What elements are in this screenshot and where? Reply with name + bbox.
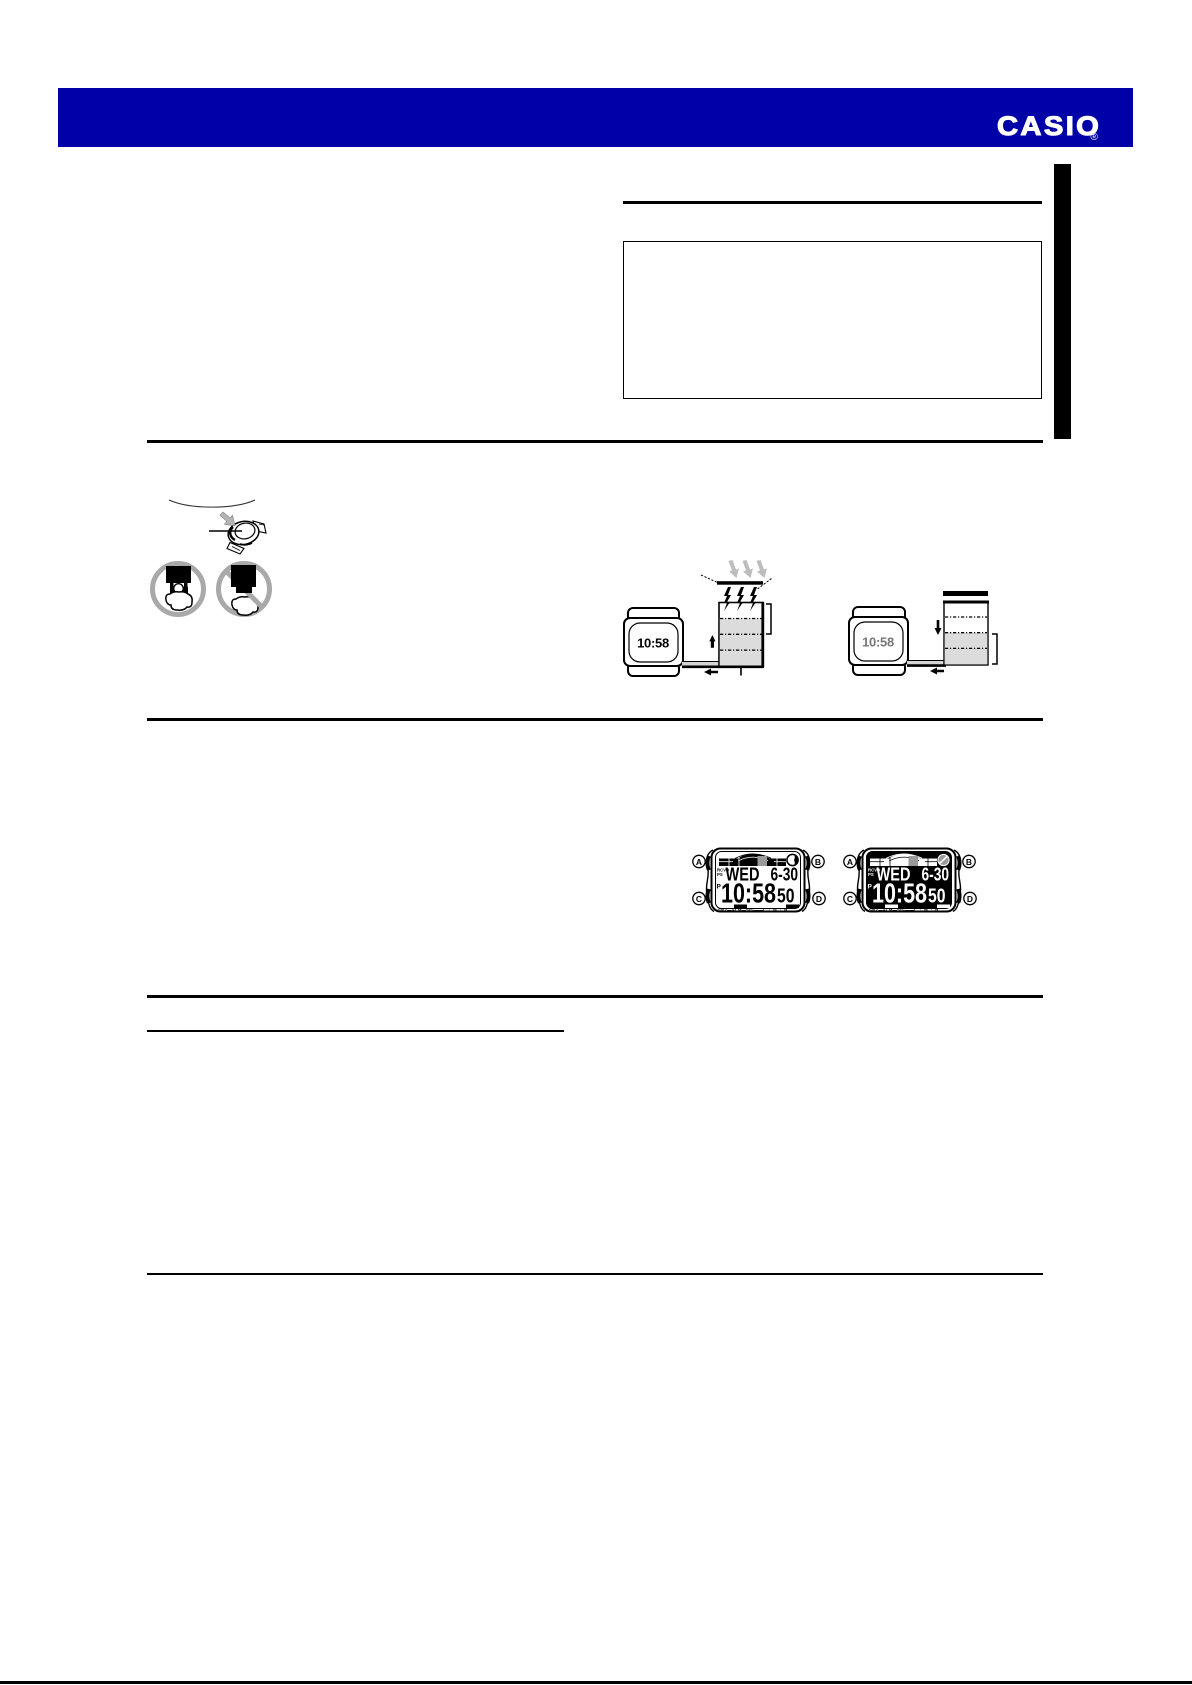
- svg-text:B: B: [966, 857, 972, 867]
- svg-text:C: C: [847, 894, 853, 904]
- svg-text:SNZ—ALM—SIG——L · M · H: SNZ—ALM—SIG——L · M · H: [718, 908, 787, 913]
- svg-text:50: 50: [777, 886, 795, 908]
- svg-text:10:58: 10:58: [637, 636, 669, 651]
- svg-text:PS: PS: [868, 872, 874, 877]
- svg-text:PS: PS: [717, 872, 723, 877]
- svg-text:D: D: [967, 894, 973, 904]
- svg-text:A: A: [696, 857, 702, 867]
- svg-text:B: B: [815, 857, 821, 867]
- svg-text:10:58: 10:58: [721, 878, 776, 909]
- svg-text:10:58: 10:58: [862, 635, 894, 650]
- svg-text:10:58: 10:58: [872, 878, 927, 909]
- svg-text:C: C: [696, 894, 702, 904]
- svg-text:D: D: [816, 894, 822, 904]
- svg-text:50: 50: [928, 886, 946, 908]
- svg-text:SNZ—ALM—SIG——L · M · H: SNZ—ALM—SIG——L · M · H: [869, 908, 938, 913]
- svg-text:A: A: [847, 857, 853, 867]
